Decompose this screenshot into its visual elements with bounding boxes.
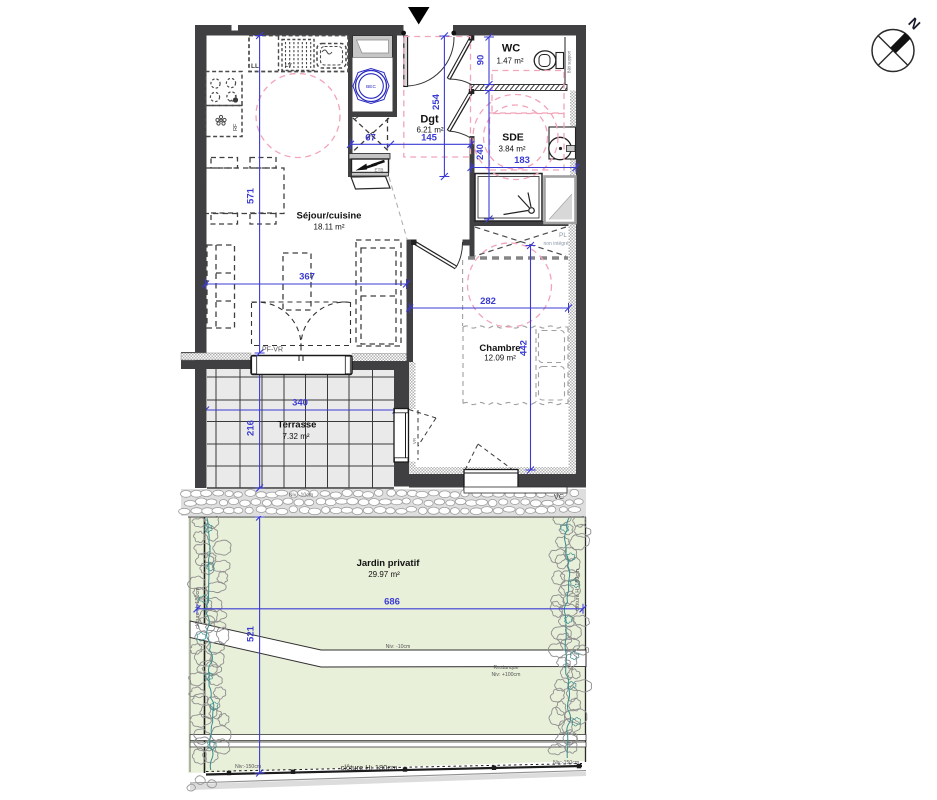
svg-text:PL: PL — [559, 232, 567, 239]
svg-text:Restanque: Restanque — [493, 665, 518, 671]
svg-text:clôture H: 180cm: clôture H: 180cm — [341, 763, 398, 772]
svg-text:RF: RF — [233, 123, 239, 131]
svg-text:Jardin privatif: Jardin privatif — [357, 558, 421, 569]
svg-text:Bâti support: Bâti support — [567, 50, 572, 73]
svg-text:18.11 m²: 18.11 m² — [314, 223, 345, 232]
svg-text:686: 686 — [384, 597, 400, 608]
svg-text:282: 282 — [480, 296, 496, 307]
svg-text:240: 240 — [475, 144, 486, 160]
svg-text:VR: VR — [412, 437, 417, 444]
svg-text:571: 571 — [246, 187, 257, 204]
svg-text:Séjour/cuisine: Séjour/cuisine — [297, 211, 362, 222]
svg-text:Niv. -10cm: Niv. -10cm — [289, 493, 313, 499]
svg-text:WC: WC — [502, 43, 520, 55]
svg-text:LV: LV — [285, 63, 292, 69]
svg-text:12.09 m²: 12.09 m² — [484, 354, 516, 363]
svg-text:90: 90 — [476, 55, 487, 66]
svg-text:254: 254 — [431, 93, 442, 110]
svg-text:PF-VR: PF-VR — [262, 347, 283, 354]
svg-text:Dgt: Dgt — [420, 114, 439, 126]
svg-text:6.21 m²: 6.21 m² — [416, 126, 443, 135]
svg-text:367: 367 — [299, 272, 315, 283]
svg-text:7.32 m²: 7.32 m² — [282, 432, 309, 441]
svg-text:SDE: SDE — [502, 132, 524, 144]
svg-text:Niv:-150cm: Niv:-150cm — [553, 760, 579, 766]
svg-text:Niv:-150cm: Niv:-150cm — [235, 764, 261, 770]
svg-text:clôture H: 180cm: clôture H: 180cm — [575, 569, 581, 611]
svg-text:521: 521 — [246, 625, 257, 642]
svg-text:442: 442 — [519, 340, 530, 356]
svg-text:29.97 m²: 29.97 m² — [368, 570, 400, 579]
svg-text:Chambre: Chambre — [479, 343, 520, 354]
svg-text:non intégré: non intégré — [543, 241, 568, 247]
svg-text:Niv: -10cm: Niv: -10cm — [386, 644, 411, 650]
svg-text:BEC: BEC — [366, 84, 376, 90]
svg-text:183: 183 — [514, 155, 530, 166]
svg-text:1.47 m²: 1.47 m² — [496, 57, 523, 66]
svg-text:LL: LL — [251, 63, 259, 70]
svg-text:67: 67 — [365, 132, 376, 143]
svg-text:Terrasse: Terrasse — [278, 420, 317, 431]
svg-text:340: 340 — [292, 398, 308, 409]
svg-text:216: 216 — [246, 420, 257, 436]
svg-text:ETB: ETB — [375, 168, 384, 173]
svg-text:Niv: +100cm: Niv: +100cm — [492, 672, 521, 678]
svg-text:3.84 m²: 3.84 m² — [498, 145, 525, 154]
